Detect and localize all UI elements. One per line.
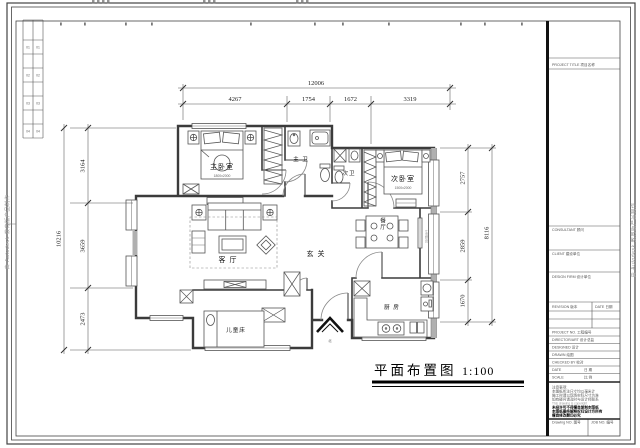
dim-left-seg1: 3164	[80, 159, 87, 173]
label-living-room: 客 厅	[219, 255, 238, 264]
tb-scale-label: SCALE	[552, 376, 564, 380]
rev-cell: 04	[36, 130, 40, 134]
floor-plan: 北 主卧室 1800x2000 主 卫 次卫 次卧室 1500x2000 客 厅…	[126, 124, 439, 351]
dim-left-overall: 10216	[56, 230, 63, 247]
dim-top-overall: 12006	[308, 80, 325, 87]
tb-notes: 注意事项: 本图纸所注尺寸均以毫米计 施工时请以现场实际尺寸为准 如有疑问请及时…	[551, 385, 603, 418]
dim-right-seg3: 1670	[460, 295, 467, 308]
living-room-furniture	[190, 198, 277, 290]
drawing-title-scale: 1:100	[462, 364, 494, 378]
rev-cell: 01	[26, 46, 30, 50]
rev-cell: 01	[36, 46, 40, 50]
rev-cell: 02	[36, 74, 40, 78]
tb-design-firm: DESIGN FIRM 设计单位	[552, 274, 591, 279]
tb-scale-cn: 比 例	[584, 375, 593, 380]
label-kids-room: 儿童床	[226, 326, 246, 334]
label-master-bath: 主 卫	[293, 155, 309, 163]
north-arrow: 北	[317, 318, 343, 343]
dim-top-seg1: 4267	[229, 96, 243, 103]
tb-project-no: PROJECT NO. 工程编号	[552, 330, 592, 335]
tb-drawn: DRAWN 绘图	[552, 352, 574, 357]
dim-right-seg1: 2757	[460, 171, 467, 185]
border-tick-marks	[60, 23, 523, 26]
label-kitchen: 厨 房	[384, 303, 400, 311]
label-second-bedroom: 次卧室	[391, 174, 415, 183]
revision-strip-table: 01 01 02 02 03 03 04 04	[23, 20, 43, 138]
rev-cell: 03	[36, 102, 40, 106]
dim-right-overall: 8116	[484, 226, 491, 240]
master-bath-fixtures	[288, 130, 330, 182]
tb-note-line: 擅自修改翻印必究	[552, 413, 581, 418]
tb-date-cn: 日 期	[584, 367, 593, 372]
label-master-bed-size: 1800x2000	[214, 174, 231, 178]
label-dining: 餐厅	[379, 216, 386, 230]
rev-cell: 04	[26, 130, 30, 134]
floorplan-sheet: 由 Autodesk 教育版产品制作 由 Autodesk 教育版产品制作 01…	[0, 0, 640, 448]
tb-rev-date: DATE 日期	[595, 304, 613, 309]
label-entry: 玄 关	[307, 249, 326, 258]
autodesk-watermark-left: 由 Autodesk 教育版产品制作	[3, 194, 11, 269]
dim-top-seg4: 3319	[404, 96, 417, 103]
sheet-border	[7, 0, 635, 444]
dim-right-seg2: 2859	[460, 240, 467, 253]
tb-project-title: PROJECT TITLE 项目名称	[552, 62, 595, 67]
tb-director: DIRECTOR/ART 设计总监	[552, 337, 595, 342]
autodesk-watermark-right: 由 Autodesk 教育版产品制作	[629, 202, 637, 277]
tb-revision: REVISION 版本	[552, 304, 578, 309]
north-label: 北	[328, 338, 332, 343]
tb-date-label: DATE	[552, 368, 562, 372]
tb-consultant: CONSULTANT 顾问	[552, 227, 584, 232]
label-service-balcony: 生活阳台	[424, 229, 428, 244]
drawing-title: 平面布置图 1:100	[372, 363, 524, 387]
title-block: PROJECT TITLE 项目名称 CONSULTANT 顾问 CLIENT …	[548, 21, 621, 436]
master-bedroom-furniture	[183, 131, 256, 194]
label-second-bath: 次卫	[342, 169, 355, 177]
tb-job-no: JOB NO. 编号	[591, 420, 614, 425]
dimensions-right: 2757 2859 1670 8116	[440, 144, 496, 326]
second-bath-fixtures	[334, 149, 360, 183]
dim-top-seg2: 1754	[302, 96, 316, 103]
tb-designer: DESIGNED 设计	[552, 345, 579, 350]
tb-checked: CHECKED BY 校对	[552, 360, 584, 365]
dim-left-seg2: 3659	[80, 240, 87, 253]
label-master-bedroom: 主卧室	[210, 162, 234, 171]
rev-cell: 03	[26, 102, 30, 106]
tb-drawing-no: Drawing NO. 图号	[552, 420, 581, 425]
tb-client: CLIENT 建设单位	[552, 251, 580, 256]
dim-left-seg3: 2473	[80, 313, 87, 326]
drawing-title-text: 平面布置图	[374, 363, 457, 378]
rev-cell: 02	[26, 74, 30, 78]
label-second-bed-size: 1500x2000	[395, 186, 412, 190]
dim-top-seg3: 1672	[344, 96, 357, 103]
